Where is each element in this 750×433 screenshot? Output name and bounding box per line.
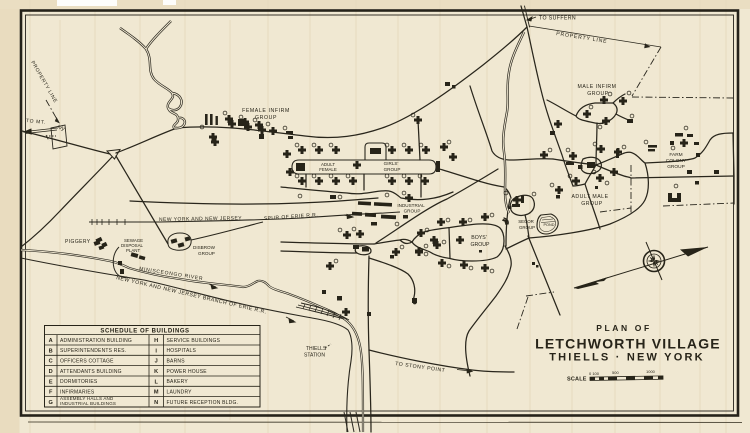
- svg-text:A: A: [49, 338, 53, 344]
- svg-text:OFFICERS COTTAGE: OFFICERS COTTAGE: [60, 358, 114, 364]
- svg-text:C: C: [49, 359, 53, 365]
- svg-text:GROUP: GROUP: [667, 164, 685, 170]
- svg-text:INDUSTRIAL: INDUSTRIAL: [397, 203, 425, 208]
- svg-text:SCALE: SCALE: [567, 377, 587, 383]
- svg-text:STATION: STATION: [304, 353, 325, 359]
- svg-text:LAUNDRY: LAUNDRY: [167, 389, 193, 395]
- svg-text:PLANT: PLANT: [126, 248, 140, 253]
- svg-text:F: F: [49, 390, 53, 396]
- svg-text:MALE INFIRM: MALE INFIRM: [578, 84, 617, 90]
- svg-text:GROUP: GROUP: [470, 242, 490, 248]
- svg-text:BARNS: BARNS: [167, 358, 186, 364]
- svg-text:DISBROW: DISBROW: [193, 245, 216, 250]
- svg-text:SCHEDULE OF BUILDINGS: SCHEDULE OF BUILDINGS: [100, 329, 189, 335]
- svg-text:M: M: [154, 390, 159, 396]
- svg-text:ADMINISTRATION BUILDING: ADMINISTRATION BUILDING: [60, 338, 132, 344]
- svg-text:E: E: [49, 379, 53, 385]
- svg-text:FARM: FARM: [669, 152, 682, 158]
- svg-text:K: K: [154, 369, 158, 375]
- svg-text:B: B: [49, 348, 53, 354]
- svg-text:SUPERINTENDENTS RES.: SUPERINTENDENTS RES.: [60, 348, 126, 354]
- svg-text:1000: 1000: [646, 369, 656, 374]
- svg-text:PLAN OF: PLAN OF: [596, 323, 652, 333]
- svg-text:FEMALE INFIRM: FEMALE INFIRM: [242, 108, 290, 114]
- svg-text:BOYS': BOYS': [471, 235, 486, 241]
- svg-text:DORMITORIES: DORMITORIES: [60, 379, 98, 385]
- svg-text:BAKERY: BAKERY: [167, 379, 189, 385]
- svg-text:GROUP: GROUP: [587, 91, 609, 97]
- svg-text:FEMALE: FEMALE: [319, 167, 337, 172]
- svg-text:SECOR: SECOR: [518, 219, 534, 224]
- svg-text:LETCHWORTH VILLAGE: LETCHWORTH VILLAGE: [535, 336, 721, 352]
- svg-text:GROUP: GROUP: [519, 225, 535, 230]
- svg-text:D: D: [49, 369, 53, 375]
- svg-text:J: J: [155, 359, 158, 365]
- svg-text:GROUP: GROUP: [255, 115, 277, 121]
- svg-text:ADULT MALE: ADULT MALE: [571, 194, 608, 200]
- svg-text:GROUP: GROUP: [404, 209, 421, 214]
- svg-text:N: N: [154, 400, 158, 406]
- svg-text:0 100: 0 100: [589, 371, 600, 376]
- svg-text:POND: POND: [544, 223, 555, 227]
- svg-text:H: H: [154, 338, 158, 344]
- svg-text:FUTURE RECEPTION BLDG.: FUTURE RECEPTION BLDG.: [167, 400, 239, 406]
- svg-text:PIGGERY: PIGGERY: [65, 239, 91, 245]
- svg-text:INFIRMARIES: INFIRMARIES: [60, 389, 95, 395]
- svg-text:GROUP: GROUP: [384, 167, 401, 172]
- svg-text:L: L: [154, 379, 158, 385]
- svg-text:GIRLS': GIRLS': [384, 161, 399, 166]
- svg-text:GROUP: GROUP: [581, 201, 603, 207]
- svg-text:G: G: [49, 400, 53, 406]
- svg-text:COLONY: COLONY: [666, 158, 687, 164]
- svg-text:THIELLS: THIELLS: [306, 346, 327, 352]
- svg-text:INDUSTRIAL BUILDINGS: INDUSTRIAL BUILDINGS: [60, 401, 116, 406]
- svg-text:ATTENDANTS BUILDING: ATTENDANTS BUILDING: [60, 369, 122, 375]
- svg-text:500: 500: [612, 370, 619, 375]
- svg-text:GROUP: GROUP: [198, 251, 215, 256]
- svg-text:SERVICE BUILDINGS: SERVICE BUILDINGS: [167, 338, 221, 344]
- svg-text:TO SUFFERN: TO SUFFERN: [539, 16, 576, 22]
- svg-text:POWER HOUSE: POWER HOUSE: [167, 369, 208, 375]
- svg-text:THIELLS · NEW YORK: THIELLS · NEW YORK: [549, 352, 705, 364]
- svg-text:HOSPITALS: HOSPITALS: [167, 348, 197, 354]
